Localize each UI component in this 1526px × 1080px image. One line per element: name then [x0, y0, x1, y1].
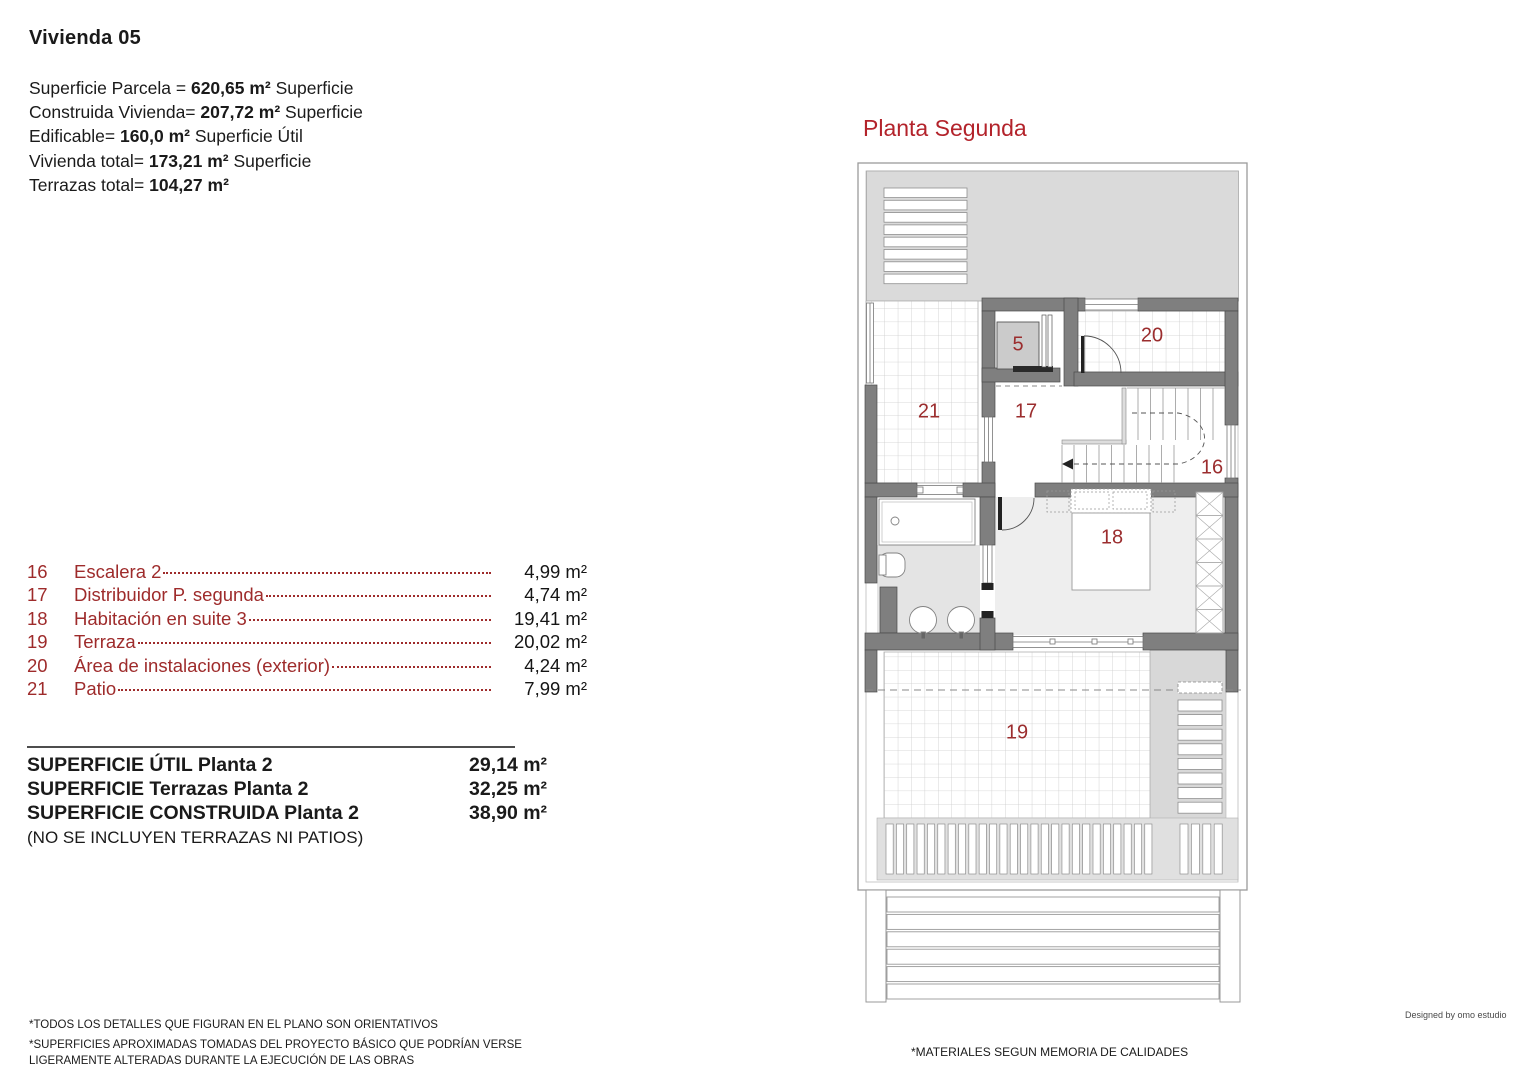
sink [948, 607, 975, 634]
elevator [997, 315, 1053, 372]
room-label-16: 16 [1201, 457, 1223, 480]
schedule-row: 18Habitación en suite 319,41 m² [27, 608, 587, 631]
bathtub-drain [891, 517, 899, 525]
room-label-20: 20 [1141, 325, 1163, 348]
plan-title: Planta Segunda [863, 115, 1027, 142]
floor-plan-drawing [855, 160, 1255, 1005]
room-19-terrace [884, 650, 1226, 830]
schedule-row: 20Área de instalaciones (exterior)4,24 m… [27, 655, 587, 678]
design-credit: Designed by omo estudio [1405, 1010, 1507, 1020]
plan-sheet: Vivienda 05 Superficie Parcela = 620,65 … [0, 0, 1526, 1080]
wardrobe [1196, 492, 1223, 633]
room-label-19: 19 [1006, 722, 1028, 745]
room-label-5: 5 [1012, 334, 1023, 357]
spec-line: Edificable= 160,0 m² Superficie Útil [29, 124, 459, 148]
summary-row: SUPERFICIE Terrazas Planta 232,25 m² [27, 778, 587, 802]
room-label-17: 17 [1015, 401, 1037, 424]
room-label-18: 18 [1101, 527, 1123, 550]
room-schedule: 16Escalera 24,99 m² 17Distribuidor P. se… [27, 561, 587, 701]
materials-note: *MATERIALES SEGUN MEMORIA DE CALIDADES [911, 1045, 1188, 1059]
room-label-21: 21 [918, 401, 940, 424]
pergola-below [866, 890, 1240, 1002]
terrace-slat-dashed [1178, 682, 1222, 693]
sheet-title: Vivienda 05 [29, 27, 141, 50]
spec-line: Construida Vivienda= 207,72 m² Superfici… [29, 100, 459, 124]
schedule-row: 16Escalera 24,99 m² [27, 561, 587, 584]
summary-note: (NO SE INCLUYEN TERRAZAS NI PATIOS) [27, 828, 587, 848]
disclaimer-1: *TODOS LOS DETALLES QUE FIGURAN EN EL PL… [29, 1019, 438, 1031]
summary-row: SUPERFICIE ÚTIL Planta 229,14 m² [27, 754, 587, 778]
schedule-row: 19Terraza20,02 m² [27, 631, 587, 654]
schedule-row: 21Patio7,99 m² [27, 678, 587, 701]
room-21-patio [866, 301, 978, 483]
sink [910, 607, 937, 634]
spec-line: Terrazas total= 104,27 m² [29, 173, 459, 197]
pergola-bars [887, 897, 1219, 999]
disclaimer-2: *SUPERFICIES APROXIMADAS TOMADAS DEL PRO… [29, 1037, 529, 1069]
spec-line: Vivienda total= 173,21 m² Superficie [29, 149, 459, 173]
summary-divider [27, 746, 515, 748]
spec-paragraph: Superficie Parcela = 620,65 m² Superfici… [29, 76, 459, 197]
area-summary: SUPERFICIE ÚTIL Planta 229,14 m² SUPERFI… [27, 746, 587, 848]
toilet-tank [879, 555, 886, 575]
summary-row: SUPERFICIE CONSTRUIDA Planta 238,90 m² [27, 802, 587, 826]
schedule-row: 17Distribuidor P. segunda4,74 m² [27, 584, 587, 607]
spec-line: Superficie Parcela = 620,65 m² Superfici… [29, 76, 459, 100]
